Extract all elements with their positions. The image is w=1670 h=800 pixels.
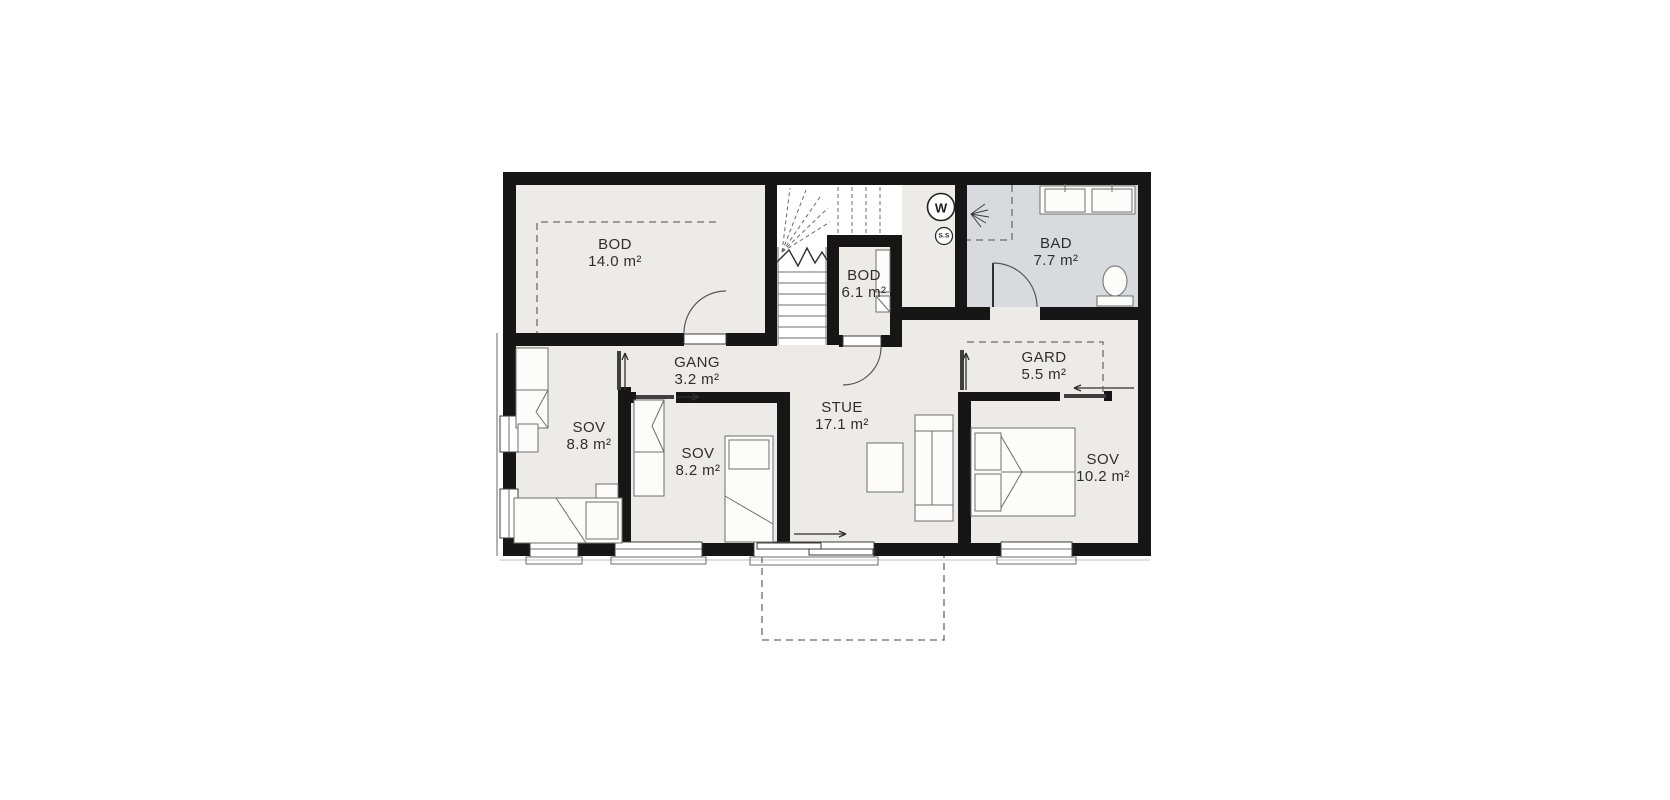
- room-name: GARD: [1022, 349, 1067, 366]
- room-area: 17.1 m²: [815, 416, 869, 433]
- wall-top: [503, 172, 1151, 185]
- room-name: SOV: [567, 419, 612, 436]
- room-area: 5.5 m²: [1022, 366, 1067, 383]
- bed-single: [725, 436, 773, 542]
- wall-bad-bottom-a: [902, 307, 990, 320]
- wall-stair-right: [827, 247, 839, 345]
- wardrobe: [516, 348, 548, 390]
- wall-bod14-gang-right: [726, 333, 777, 346]
- wall-bod61-bottom-a: [839, 335, 843, 347]
- room-label-bod14: BOD 14.0 m²: [588, 236, 642, 270]
- stairwell-area: [777, 185, 827, 345]
- room-name: STUE: [815, 399, 869, 416]
- window-sov88: [530, 542, 578, 557]
- window-sov82: [615, 542, 702, 557]
- window-sov102: [1001, 542, 1072, 557]
- wall-right: [1138, 172, 1151, 556]
- vanity: [1040, 184, 1135, 214]
- wall-jamb-nub: [618, 333, 631, 346]
- wall-sov82-stue: [777, 392, 790, 543]
- wall-bod14-gang-left: [503, 333, 684, 346]
- shelf: [518, 424, 538, 452]
- wall-stue-sov102: [958, 392, 971, 543]
- room-name: SOV: [676, 445, 721, 462]
- room-name: BOD: [842, 267, 887, 284]
- coffee-table: [867, 443, 903, 492]
- sensor-icon: S.S: [938, 233, 949, 240]
- room-area: 10.2 m²: [1076, 468, 1130, 485]
- room-label-stue: STUE 17.1 m²: [815, 399, 869, 433]
- room-area: 7.7 m²: [1034, 252, 1079, 269]
- wall-bad-bottom-b: [1040, 307, 1151, 320]
- room-name: BOD: [588, 236, 642, 253]
- floor-plan-page: BOD 14.0 m² BOD 6.1 m² BAD 7.7 m² GANG 3…: [0, 0, 1670, 800]
- wall-gard-bottom: [967, 392, 1060, 401]
- terrace-outline: [762, 556, 944, 640]
- wall-stair-left: [765, 185, 777, 333]
- room-name: BAD: [1034, 235, 1079, 252]
- window-left-upper: [500, 416, 518, 452]
- wardrobe: [634, 400, 664, 452]
- room-name: GANG: [674, 354, 720, 371]
- sill-stue: [750, 557, 878, 565]
- room-label-gang: GANG 3.2 m²: [674, 354, 720, 388]
- room-area: 8.8 m²: [567, 436, 612, 453]
- washer-icon: W: [935, 201, 947, 216]
- room-area: 3.2 m²: [674, 371, 720, 388]
- room-label-sov102: SOV 10.2 m²: [1076, 451, 1130, 485]
- room-area: 14.0 m²: [588, 253, 642, 270]
- room-label-sov82: SOV 8.2 m²: [676, 445, 721, 479]
- wardrobe: [634, 452, 664, 496]
- room-label-bod61: BOD 6.1 m²: [842, 267, 887, 301]
- room-label-bad: BAD 7.7 m²: [1034, 235, 1079, 269]
- room-label-sov88: SOV 8.8 m²: [567, 419, 612, 453]
- room-name: SOV: [1076, 451, 1130, 468]
- sov102-furniture: [971, 428, 1075, 516]
- wall-bod61-right: [890, 235, 902, 347]
- room-label-gard: GARD 5.5 m²: [1022, 349, 1067, 383]
- bed-single: [514, 498, 622, 543]
- room-area: 6.1 m²: [842, 284, 887, 301]
- wall-bod61-bottom-b: [881, 335, 902, 347]
- room-area: 8.2 m²: [676, 462, 721, 479]
- wall-bad-left: [955, 185, 967, 307]
